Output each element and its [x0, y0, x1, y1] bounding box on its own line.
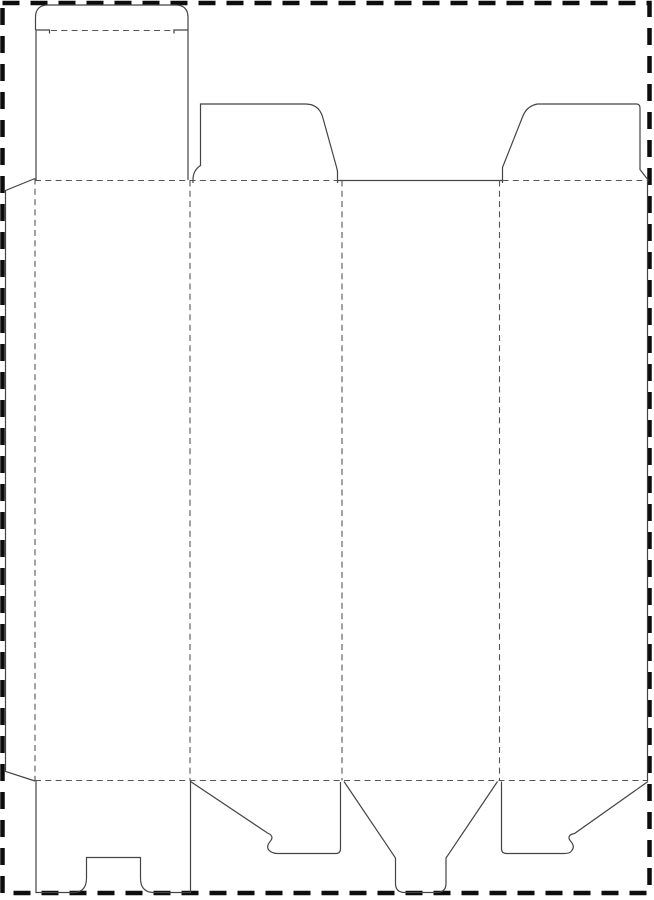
dieline-svg — [0, 0, 654, 900]
page-margin-border — [3, 3, 650, 893]
top-dust-flap-right-outline — [503, 104, 649, 183]
tuck-lid-outline — [36, 5, 189, 30]
top-dust-flap-left-outline — [193, 104, 338, 183]
bottom-tuck-tongue-outline — [344, 782, 498, 893]
lid-fold-notch-right — [174, 30, 188, 34]
template-page — [0, 0, 654, 900]
bottom-flap-panel4-hook-outline — [502, 782, 649, 854]
bottom-flap-panel2-hook-outline — [191, 782, 341, 854]
lid-fold-notch-left — [36, 30, 50, 34]
glue-flap-outline — [6, 179, 36, 782]
bottom-flap-panel1-lock-slot-outline — [36, 781, 191, 893]
